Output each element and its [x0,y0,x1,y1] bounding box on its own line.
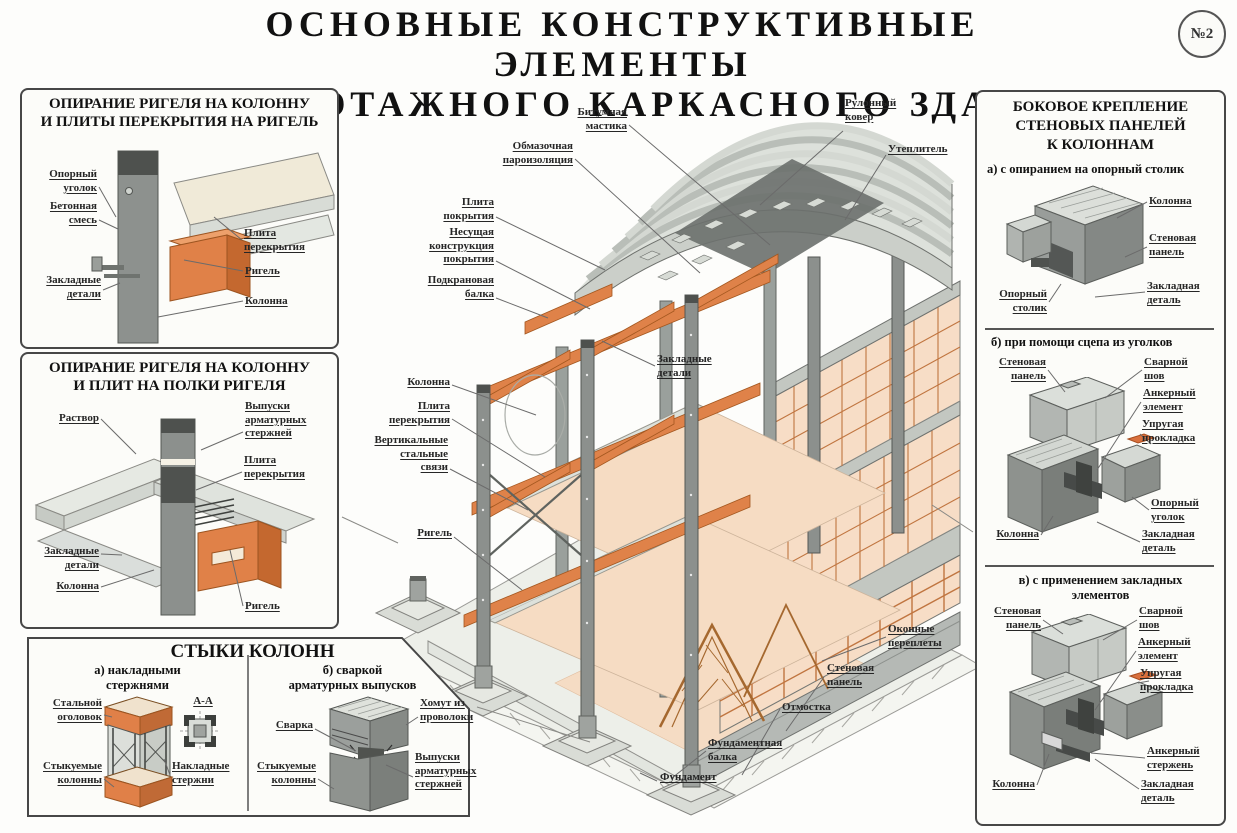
label-rastvor: Раствор [37,412,99,426]
label-uteplitel: Утеплитель [888,143,960,157]
panel-column-joints: СТЫКИ КОЛОНН а) накладными стержнями б) … [20,637,477,818]
label-svarnoy-shov: Сварнойшов [1139,605,1199,632]
label-otmostka: Отмостка [782,701,860,715]
column-joint-welded-drawing [322,695,417,817]
label-rigel: Ригель [245,265,305,279]
label-stenovaya-panel: Стеноваяпанель [979,605,1041,632]
label-stenovaya-panel: Стеноваяпанель [1149,232,1211,259]
subheader-a: а) накладными стержнями [40,663,235,693]
label-section-a-a: А-А [186,695,220,709]
label-stalnoy-ogolovok: Стальнойоголовок [32,697,102,724]
label-kolonna: Колонна [979,778,1035,792]
label-kolonna: Колонна [37,580,99,594]
label-plita-perekrytiya: Плитаперекрытия [244,454,324,481]
label-oporny-ugolok: Опорныйуголок [1151,497,1209,524]
label-zakladnaya-detal: Закладнаядеталь [1147,280,1211,307]
label-vypuski-sterzhney: Выпускиарматурныхстержней [245,400,325,441]
label-ankerny-element: Анкерныйэлемент [1138,636,1200,663]
label-plita-perekrytiya: Плитаперекрытия [244,227,324,254]
sheet-number-badge: №2 [1178,10,1226,58]
label-oporny-ugolok: Опорныйуголок [35,168,97,195]
label-kolonna: Колонна [981,528,1039,542]
label-rulonny-kover: Рулонныйковер [845,97,913,124]
label-obmazochnaya-paroizolyatsiya: Обмазочнаяпароизоляция [460,140,573,167]
label-kolonna: Колонна [385,376,450,390]
label-okonnye-perplety: Оконныепереплеты [888,623,973,650]
page-title-line1: ОСНОВНЫЕ КОНСТРУКТИВНЫЕ ЭЛЕМЕНТЫ [150,4,1095,84]
panel-title: СТЫКИ КОЛОНН [80,641,425,663]
panel-title: ОПИРАНИЕ РИГЕЛЯ НА КОЛОННУ И ПЛИТЫ ПЕРЕК… [22,90,337,131]
label-ankerny-sterzhen: Анкерныйстержень [1147,745,1209,772]
label-uprugaya-prokladka: Упругаяпрокладка [1140,667,1204,694]
panel-side-fastening-wall-panels: БОКОВОЕ КРЕПЛЕНИЕ СТЕНОВЫХ ПАНЕЛЕЙ К КОЛ… [975,90,1226,826]
label-kolonna: Колонна [1149,195,1211,209]
poster-root: ОСНОВНЫЕ КОНСТРУКТИВНЫЕ ЭЛЕМЕНТЫ МНОГОЭТ… [0,0,1237,833]
label-stykuemye-kolonny-a: Стыкуемыеколонны [32,760,102,787]
label-fundament: Фундамент [660,771,752,785]
rigel-shelves-drawing [22,409,337,627]
label-podkranovaya-balka: Подкрановаябалка [384,274,494,301]
label-khomut: Хомут изпроволоки [420,697,475,724]
label-stenovaya-panel: Стеноваяпанель [982,356,1046,383]
panel-rigel-on-column-slab-on-rigel: ОПИРАНИЕ РИГЕЛЯ НА КОЛОННУ И ПЛИТЫ ПЕРЕК… [20,88,339,349]
panel-rigel-on-column-slab-on-shelves: ОПИРАНИЕ РИГЕЛЯ НА КОЛОННУ И ПЛИТ НА ПОЛ… [20,352,339,629]
label-plita-pokrytiya: Плитапокрытия [400,196,494,223]
section-a-a-icon [178,709,222,753]
label-zakladnye-detali: Закладныедетали [657,353,752,380]
label-vertikalnye-svyazi: Вертикальныестальныесвязи [348,434,448,475]
label-nakladnye-sterzhni: Накладныестержни [172,760,240,787]
label-svarnoy-shov: Сварнойшов [1144,356,1204,383]
label-rigel: Ригель [245,600,305,614]
label-svarka: Сварка [265,719,313,733]
label-zakladnaya-detal: Закладнаядеталь [1141,778,1203,805]
label-nesushchaya-konstruktsiya: Несущаяконструкцияпокрытия [387,226,494,267]
label-betonnaya-smes: Бетоннаясмесь [35,200,97,227]
label-plita-perekrytiya: Плитаперекрытия [360,400,450,427]
label-stykuemye-kolonny-b: Стыкуемыеколонны [248,760,316,787]
panel-title: ОПИРАНИЕ РИГЕЛЯ НА КОЛОННУ И ПЛИТ НА ПОЛ… [22,354,337,395]
label-zakladnye-detali: Закладныедетали [35,545,99,572]
label-stenovaya-panel: Стеноваяпанель [827,662,907,689]
label-fundamentnaya-balka: Фундаментнаябалка [708,737,808,764]
label-rigel: Ригель [390,527,452,541]
label-zakladnaya-detal: Закладнаядеталь [1142,528,1204,555]
label-uprugaya-prokladka: Упругаяпрокладка [1142,418,1206,445]
label-bitumnaya-mastika: Битумнаямастика [520,106,627,133]
label-ankerny-element: Анкерныйэлемент [1143,387,1205,414]
label-vypuski-armatury: Выпускиарматурныхстержней [415,751,475,792]
label-kolonna: Колонна [245,295,305,309]
label-zakladnye-detali: Закладныедетали [35,274,101,301]
subheader-b: б) сваркой арматурных выпусков [260,663,445,693]
column-joint-overlay-rods-drawing [100,695,180,810]
crane-beam [525,284,612,334]
label-oporny-stolik: Опорныйстолик [985,288,1047,315]
